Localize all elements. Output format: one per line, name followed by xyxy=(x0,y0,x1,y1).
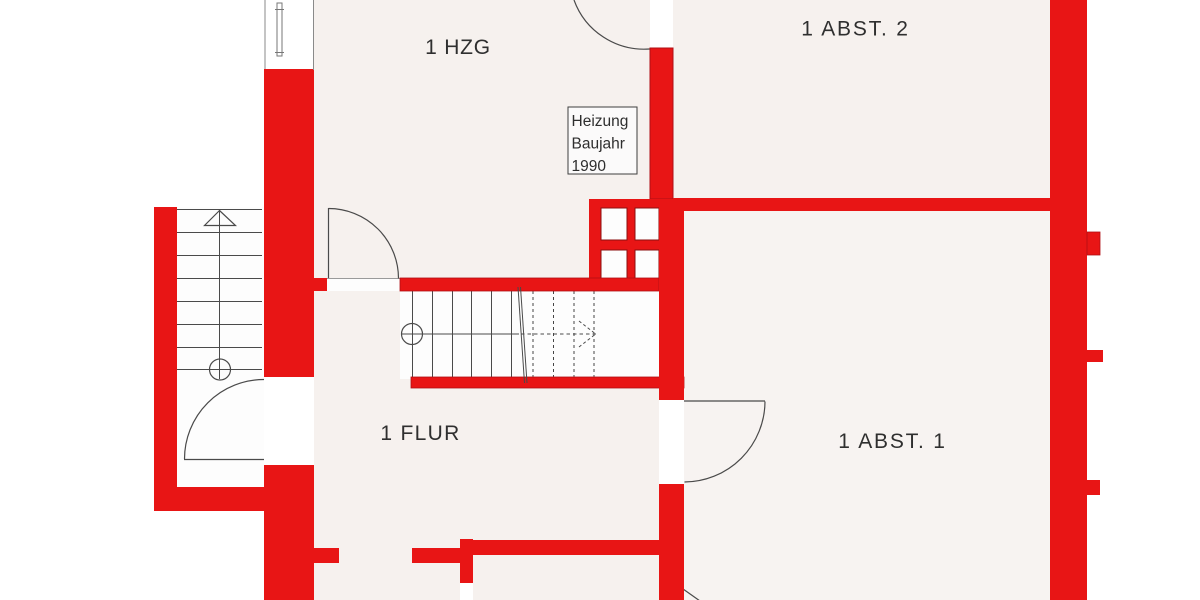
svg-text:Baujahr: Baujahr xyxy=(572,136,625,153)
svg-text:1990: 1990 xyxy=(572,158,607,175)
svg-text:1 ABST. 2: 1 ABST. 2 xyxy=(801,18,909,41)
svg-text:1 FLUR: 1 FLUR xyxy=(380,422,460,445)
svg-text:1 ABST. 1: 1 ABST. 1 xyxy=(838,430,946,453)
svg-text:1 HZG: 1 HZG xyxy=(425,36,491,59)
svg-text:Heizung: Heizung xyxy=(572,113,629,130)
